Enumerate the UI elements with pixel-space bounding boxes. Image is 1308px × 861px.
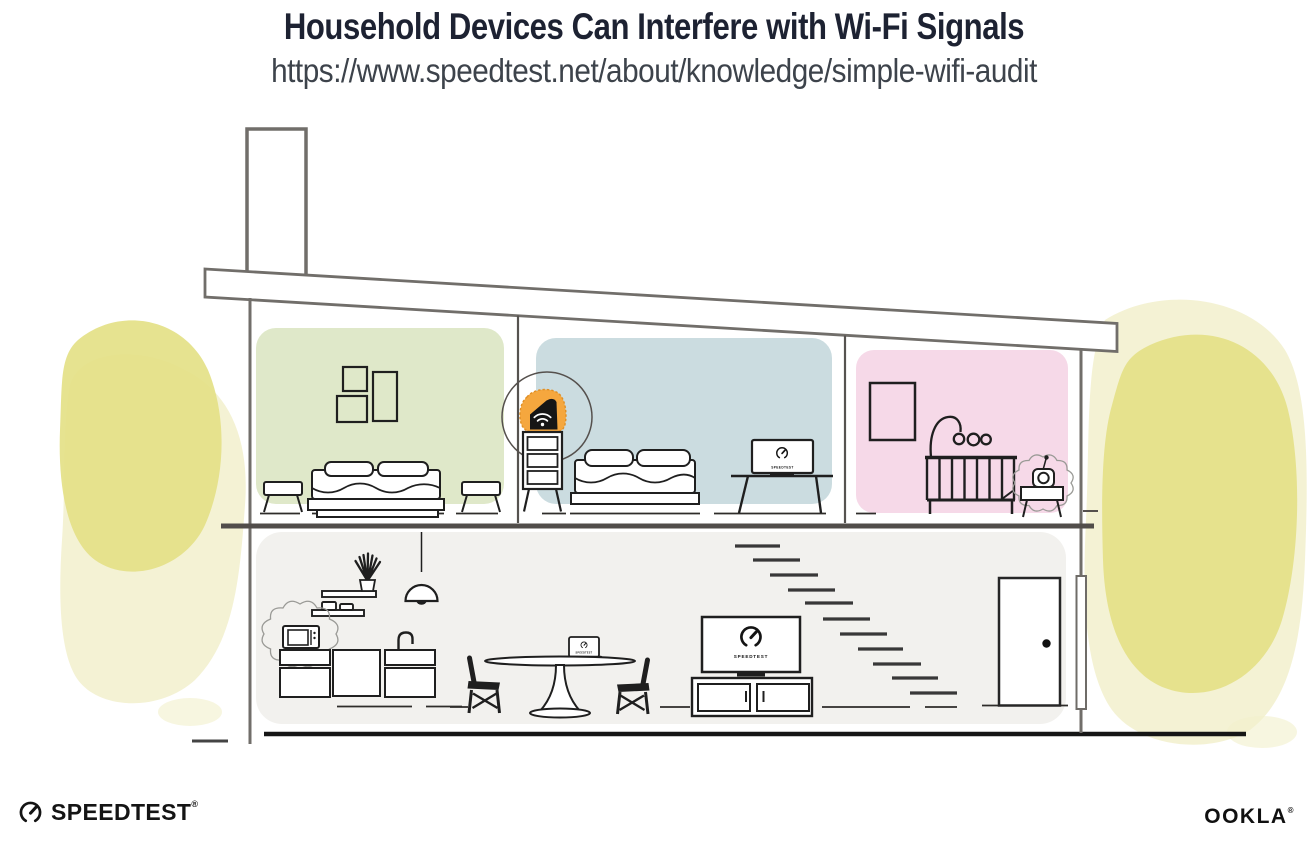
bed-master: [308, 462, 444, 517]
media-console: [692, 678, 812, 716]
foliage-left: [60, 320, 246, 726]
ookla-logo: OOKLA®: [1204, 806, 1295, 828]
speedtest-logo: SPEEDTEST®: [17, 799, 198, 826]
desktop-monitor: SPEEDTEST: [752, 440, 813, 475]
microwave: [283, 626, 319, 648]
monitor-screen-label: SPEEDTEST: [771, 466, 794, 470]
tv-area-furniture: SPEEDTEST: [692, 617, 812, 716]
laptop-screen-label: SPEEDTEST: [576, 652, 593, 655]
ground-line: [192, 734, 1246, 741]
downspout: [1077, 576, 1087, 709]
chimney: [247, 129, 306, 277]
speedtest-wordmark: SPEEDTEST®: [51, 799, 198, 826]
speedtest-gauge-icon: [17, 799, 44, 826]
house-illustration: SPEEDTEST: [0, 0, 1308, 861]
front-door: [999, 578, 1060, 706]
registered-mark: ®: [191, 799, 198, 809]
registered-mark: ®: [1288, 806, 1295, 815]
doorknob: [1042, 639, 1050, 647]
foliage-right: [1085, 300, 1307, 748]
tv-screen-label: SPEEDTEST: [734, 654, 769, 659]
tv: SPEEDTEST: [702, 617, 800, 675]
infographic-canvas: Household Devices Can Interfere with Wi-…: [0, 0, 1308, 861]
kitchen-cabinets: [280, 650, 435, 697]
ookla-wordmark: OOKLA: [1204, 805, 1287, 828]
